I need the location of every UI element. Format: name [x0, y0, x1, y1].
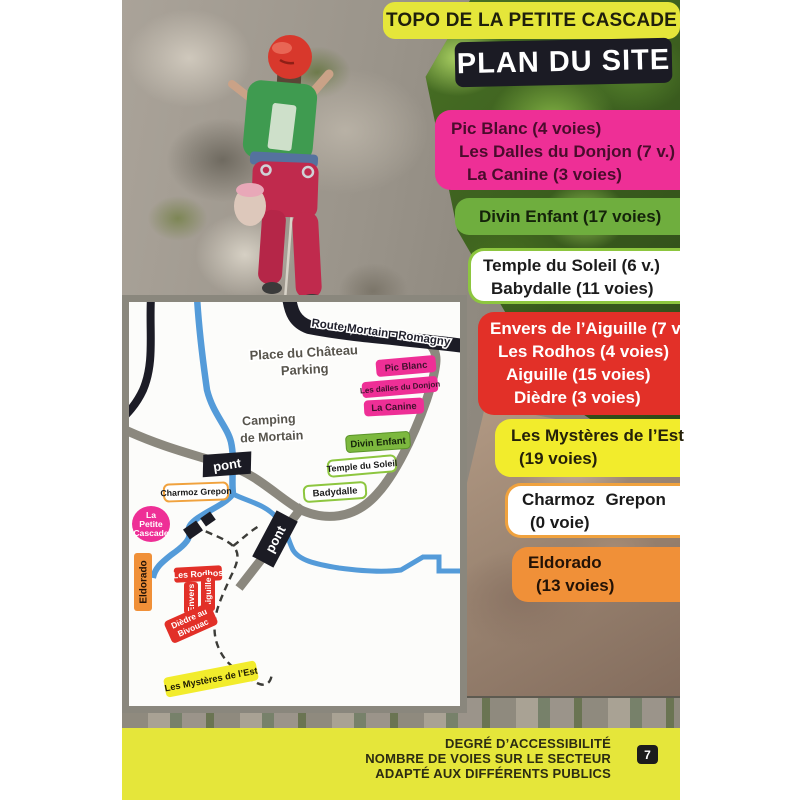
plan-title-text: PLAN DU SITE	[456, 44, 670, 81]
sector-badge-envers-group: Envers de l’Aiguille (7 v.) Les Rodhos (…	[478, 312, 680, 415]
chalk-bag-frill	[236, 183, 264, 197]
sector-line: Temple du Soleil (6 v.)	[483, 254, 680, 277]
sector-badge-temple-babydalle: Temple du Soleil (6 v.) Babydalle (11 vo…	[468, 248, 680, 304]
sector-line: Les Rodhos (4 voies)	[490, 340, 680, 363]
sector-badge-charmoz: Charmoz Grepon (0 voie)	[505, 483, 680, 538]
svg-text:Eldorado: Eldorado	[139, 560, 150, 603]
sector-badge-pic-blanc-group: Pic Blanc (4 voies) Les Dalles du Donjon…	[435, 110, 680, 190]
sector-line: Aiguille (15 voies)	[490, 363, 680, 386]
trail-dashed-branch	[233, 526, 259, 546]
climber-helmet	[268, 35, 312, 79]
sector-line: Envers de l’Aiguille (7 v.)	[490, 317, 680, 340]
svg-text:Place du Château: Place du Château	[249, 342, 358, 363]
page-number-badge: 7	[637, 745, 658, 764]
sector-line: La Canine (3 voies)	[451, 163, 680, 186]
map-badge-charmoz: Charmoz Grepon	[160, 482, 232, 501]
topo-title-text: TOPO DE LA PETITE CASCADE	[386, 10, 677, 32]
footer-line: NOMBRE DE VOIES SUR LE SECTEUR	[365, 751, 611, 766]
map-badge-les-rodhos: Les Rodhos	[172, 565, 223, 583]
sector-badge-mysteres: Les Mystères de l’Est (19 voies)	[495, 419, 680, 477]
map-badge-pic-blanc: Pic Blanc	[375, 355, 436, 377]
guidebook-page: TOPO DE LA PETITE CASCADE PLAN DU SITE P…	[0, 0, 800, 800]
sector-line: Les Dalles du Donjon (7 v.)	[451, 140, 680, 163]
camping-label: Camping de Mortain	[239, 411, 304, 445]
sector-badge-divin-enfant: Divin Enfant (17 voies)	[455, 198, 680, 235]
svg-text:de Mortain: de Mortain	[240, 428, 304, 445]
page-number: 7	[644, 748, 651, 762]
map-badge-la-canine: La Canine	[364, 397, 425, 416]
climber-left-leg	[257, 209, 286, 284]
map-badge-eldorado: Eldorado	[134, 553, 152, 611]
sector-line: Babydalle (11 voies)	[483, 277, 680, 300]
site-map-svg: pont pont Route Mortain - Romagny Place …	[129, 302, 460, 706]
footer-line: ADAPTÉ AUX DIFFÉRENTS PUBLICS	[365, 766, 611, 781]
climber-right-leg	[292, 211, 322, 298]
sector-line: Charmoz Grepon	[522, 488, 680, 511]
page-title: TOPO DE LA PETITE CASCADE	[383, 2, 680, 39]
footer-bar: DEGRÉ D’ACCESSIBILITÉ NOMBRE DE VOIES SU…	[122, 728, 680, 800]
helmet-highlight	[272, 42, 292, 54]
sector-line: (19 voies)	[511, 447, 680, 470]
footer-line: DEGRÉ D’ACCESSIBILITÉ	[365, 736, 611, 751]
sector-line: (0 voie)	[522, 511, 680, 534]
sector-line: (13 voies)	[528, 574, 680, 597]
svg-text:Envers: Envers	[186, 583, 196, 612]
sector-badge-eldorado: Eldorado (13 voies)	[512, 547, 680, 602]
map-badge-mysteres: Les Mystères de l’Est	[163, 660, 260, 698]
map-badge-petite-cascade: La Petite Cascade	[132, 506, 170, 542]
sector-line: Eldorado	[528, 551, 680, 574]
sector-line: Les Mystères de l’Est	[511, 424, 680, 447]
svg-text:Parking: Parking	[280, 361, 328, 378]
footer-caption: DEGRÉ D’ACCESSIBILITÉ NOMBRE DE VOIES SU…	[365, 736, 611, 781]
sector-line: Divin Enfant (17 voies)	[479, 205, 661, 228]
climbing-shoe-left	[262, 282, 282, 294]
place-du-chateau-label: Place du Château Parking	[249, 342, 359, 380]
sector-line: Pic Blanc (4 voies)	[451, 117, 680, 140]
svg-text:Cascade: Cascade	[133, 528, 169, 538]
plan-du-site-banner: PLAN DU SITE	[455, 38, 673, 88]
site-map: pont pont Route Mortain - Romagny Place …	[122, 295, 467, 713]
svg-text:Camping: Camping	[242, 412, 296, 429]
black-road-left	[129, 302, 151, 422]
map-badge-badydalle: Badydalle	[304, 482, 367, 502]
sector-line: Dièdre (3 voies)	[490, 386, 680, 409]
